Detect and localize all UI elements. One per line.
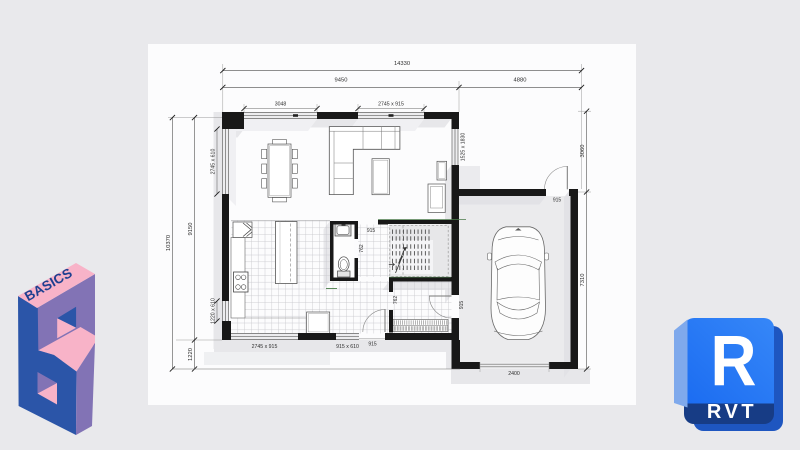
svg-text:14330: 14330	[394, 61, 410, 67]
svg-text:2400: 2400	[508, 371, 520, 377]
svg-text:3048: 3048	[275, 102, 287, 108]
svg-text:1220: 1220	[188, 348, 194, 361]
svg-text:9450: 9450	[335, 78, 348, 84]
svg-text:7310: 7310	[580, 274, 586, 287]
svg-text:1220 x 610: 1220 x 610	[210, 298, 216, 324]
svg-text:915 x 610: 915 x 610	[336, 344, 359, 350]
svg-text:762: 762	[359, 244, 365, 253]
svg-text:4880: 4880	[514, 78, 527, 84]
svg-text:915: 915	[367, 228, 376, 234]
svg-text:R: R	[711, 322, 757, 401]
svg-text:3060: 3060	[580, 145, 586, 158]
svg-text:915: 915	[459, 301, 465, 310]
svg-text:9150: 9150	[188, 223, 194, 236]
svg-text:762: 762	[393, 296, 399, 305]
svg-text:10370: 10370	[166, 235, 172, 251]
svg-text:2745 x 915: 2745 x 915	[252, 344, 278, 350]
svg-text:2745 x 610: 2745 x 610	[210, 149, 216, 175]
svg-text:2745 x 915: 2745 x 915	[378, 102, 404, 108]
svg-text:RVT: RVT	[707, 401, 757, 423]
svg-text:915: 915	[368, 342, 377, 348]
svg-text:915: 915	[553, 198, 562, 204]
svg-text:1525 x 1830: 1525 x 1830	[461, 133, 467, 162]
